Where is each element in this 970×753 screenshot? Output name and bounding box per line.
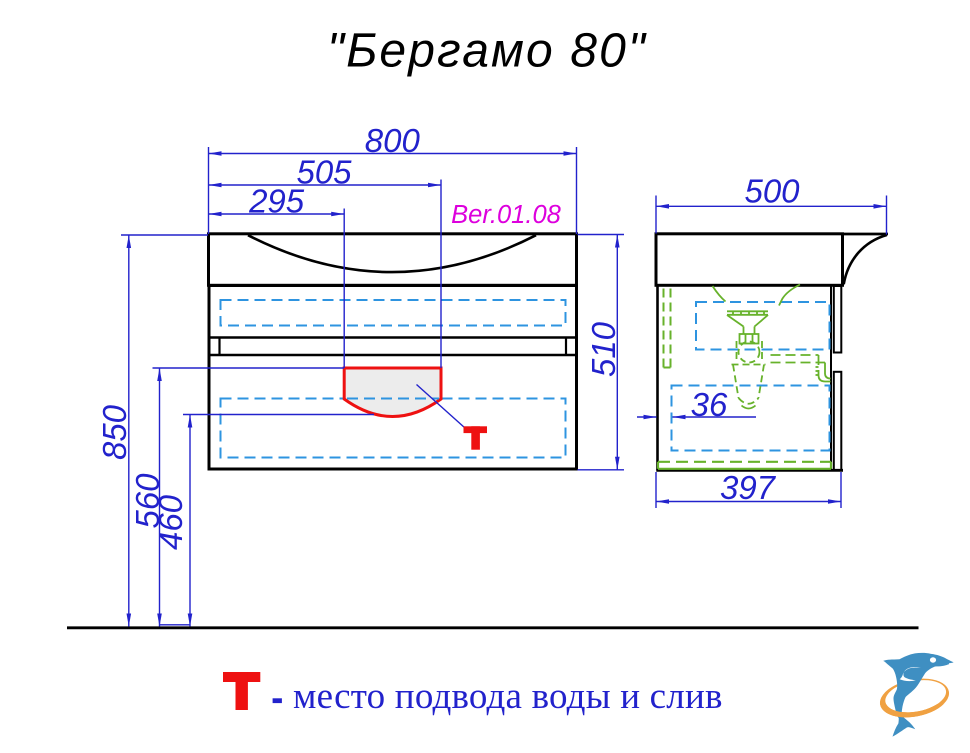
svg-text:800: 800	[365, 122, 421, 159]
svg-text:место подвода воды и слив: место подвода воды и слив	[293, 676, 723, 717]
svg-text:397: 397	[720, 469, 777, 506]
svg-text:460: 460	[152, 494, 189, 550]
svg-text:36: 36	[691, 386, 728, 423]
svg-text:"Бергамо 80": "Бергамо 80"	[327, 25, 647, 78]
svg-text:295: 295	[248, 183, 305, 220]
svg-text:505: 505	[296, 154, 352, 191]
svg-text:Ber.01.08: Ber.01.08	[451, 201, 561, 229]
svg-text:510: 510	[585, 321, 622, 377]
svg-text:850: 850	[96, 404, 133, 460]
svg-text:500: 500	[744, 173, 800, 210]
